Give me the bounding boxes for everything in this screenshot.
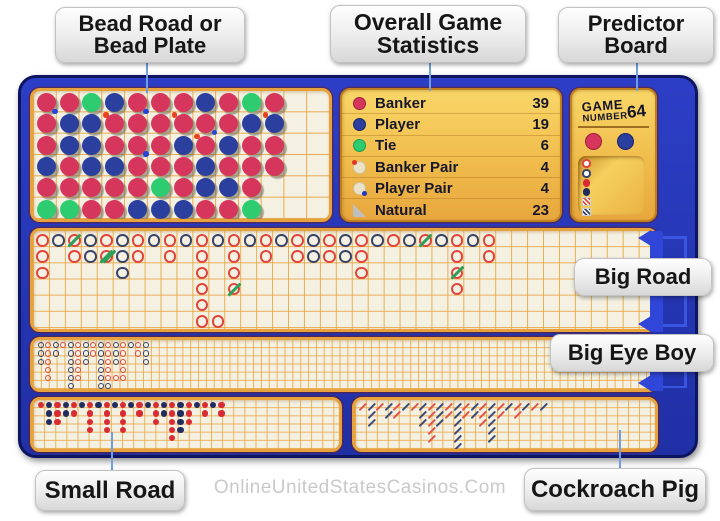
cockroach-pig-label-text: Cockroach Pig <box>531 476 699 504</box>
big-road-player-mark <box>116 267 129 280</box>
player-bead <box>60 136 79 155</box>
player-pair-dot <box>52 109 58 115</box>
label-cockroach-pig: Cockroach Pig <box>524 468 706 511</box>
big-eye-player-mark <box>68 359 74 365</box>
small-road-label-text: Small Road <box>45 477 176 505</box>
small-road-banker-mark <box>54 419 60 425</box>
small-road-player-mark <box>161 410 167 416</box>
big-road-banker-mark <box>260 250 273 263</box>
small-road-banker-mark <box>120 410 126 416</box>
stats-row: Natural23 <box>342 199 560 220</box>
banker-bead <box>151 93 170 112</box>
big-eye-banker-mark <box>120 367 126 373</box>
callout-stats-line1: Overall Game <box>354 11 502 34</box>
big-eye-banker-mark <box>90 350 96 356</box>
tie-bead <box>242 93 261 112</box>
banker-bead <box>242 136 261 155</box>
big-eye-player-mark <box>68 383 74 389</box>
player-pair-dot <box>143 109 149 115</box>
banker-bead <box>60 93 79 112</box>
player-bead <box>60 114 79 133</box>
stats-row: Banker Pair4 <box>342 157 560 178</box>
big-eye-banker-mark <box>75 350 81 356</box>
big-road-player-mark <box>116 234 129 247</box>
banker-bead <box>151 136 170 155</box>
natural-icon <box>353 204 366 217</box>
big-eye-player-mark <box>38 350 44 356</box>
predictor-board-panel: GAME NUMBER 64 <box>570 88 657 222</box>
player-bead <box>151 200 170 219</box>
small-road-banker-mark <box>120 419 126 425</box>
big-road-player-mark <box>339 234 352 247</box>
big-road-player-mark <box>307 250 320 263</box>
stats-label: Natural <box>375 202 427 219</box>
small-road-player-mark <box>177 410 183 416</box>
banker-bead <box>196 136 215 155</box>
big-eye-player-mark <box>143 359 149 365</box>
stats-value: 4 <box>541 180 549 197</box>
big-road-player-mark <box>244 234 257 247</box>
stats-row: Tie6 <box>342 136 560 157</box>
player-predictor-circle <box>617 133 634 150</box>
stats-value: 19 <box>532 116 549 133</box>
big-road-player-mark <box>371 234 384 247</box>
banker-icon <box>353 97 366 110</box>
big-road-bracket-arrow-bottom <box>638 316 651 332</box>
banker-bead <box>37 136 56 155</box>
big-road-banker-mark <box>36 267 49 280</box>
big-eye-player-mark <box>143 350 149 356</box>
stats-row: Banker39 <box>342 93 560 114</box>
small-road-banker-mark <box>104 427 110 433</box>
big-road-player-mark <box>339 250 352 263</box>
small-road-banker-mark <box>71 410 77 416</box>
big-eye-banker-mark <box>105 367 111 373</box>
big-eye-player-mark <box>98 367 104 373</box>
banker-bead <box>174 178 193 197</box>
small-road-player-mark <box>177 427 183 433</box>
big-eye-boy-label-text: Big Eye Boy <box>568 340 696 366</box>
big-eye-banker-mark <box>105 359 111 365</box>
banker-bead <box>128 157 147 176</box>
big-eye-player-mark <box>68 350 74 356</box>
small-road-banker-mark <box>169 410 175 416</box>
label-big-eye-boy: Big Eye Boy <box>550 334 714 372</box>
small-road-banker-mark <box>202 410 208 416</box>
banker-bead <box>174 114 193 133</box>
big-eye-banker-mark <box>120 350 126 356</box>
big-road-player-mark <box>52 234 65 247</box>
player-pair-dot <box>143 151 149 157</box>
big-eye-banker-mark <box>113 375 119 381</box>
big-road-player-mark <box>275 234 288 247</box>
big-eye-bracket-stub-bottom <box>663 386 686 389</box>
banker-bead <box>265 136 284 155</box>
big-eye-player-mark <box>98 375 104 381</box>
small-road-banker-mark <box>104 410 110 416</box>
banker-pair-dot <box>172 112 178 118</box>
big-road-banker-mark <box>196 234 209 247</box>
big-eye-player-mark <box>98 350 104 356</box>
player-bead <box>265 114 284 133</box>
big-eye-player-mark <box>68 367 74 373</box>
big-road-banker-mark <box>36 234 49 247</box>
big-road-player-mark <box>467 234 480 247</box>
banker-cockroach-slash-icon <box>582 197 591 206</box>
callout-stats-line2: Statistics <box>377 34 479 57</box>
big-eye-banker-mark <box>45 359 51 365</box>
number-label: NUMBER <box>582 110 628 124</box>
big-road-banker-mark <box>196 315 209 328</box>
big-road-banker-mark <box>260 234 273 247</box>
big-eye-banker-mark <box>135 350 141 356</box>
callout-bead-line2: Bead Plate <box>94 35 207 57</box>
big-eye-bracket-arrow-bottom <box>638 375 651 391</box>
small-road-player-mark <box>177 419 183 425</box>
predictor-result-box <box>578 156 645 215</box>
stats-label: Player Pair <box>375 180 453 197</box>
small-road-player-mark <box>46 410 52 416</box>
big-road-player-mark <box>84 234 97 247</box>
watermark: OnlineUnitedStatesCasinos.Com <box>214 477 506 499</box>
big-road-banker-mark <box>483 234 496 247</box>
big-road-banker-mark <box>291 234 304 247</box>
small-road-banker-mark <box>136 402 142 408</box>
game-statistics-panel: Banker39Player19Tie6Banker Pair4Player P… <box>340 88 562 222</box>
callout-predictor-line1: Predictor <box>588 13 685 35</box>
big-road-banker-mark <box>228 234 241 247</box>
callout-predictor-board: Predictor Board <box>558 7 714 63</box>
banker-bead <box>219 200 238 219</box>
small-road-banker-mark <box>186 410 192 416</box>
big-road-banker-mark <box>36 250 49 263</box>
label-small-road: Small Road <box>35 470 185 511</box>
small-road-grid <box>33 400 339 449</box>
big-eye-player-mark <box>113 359 119 365</box>
big-road-player-mark <box>212 234 225 247</box>
big-road-player-mark <box>435 234 448 247</box>
stats-row: Player Pair4 <box>342 178 560 199</box>
player-cockroach-slash-icon <box>582 208 591 217</box>
cockroach-pig-panel <box>352 397 658 452</box>
big-eye-banker-mark <box>105 350 111 356</box>
banker-bead <box>105 200 124 219</box>
big-road-banker-mark <box>355 267 368 280</box>
small-road-banker-mark <box>104 419 110 425</box>
predictor-icon-column <box>582 159 591 216</box>
small-road-player-mark <box>177 402 183 408</box>
small-road-banker-mark <box>120 427 126 433</box>
callout-predictor-line2: Board <box>604 35 668 57</box>
baccarat-scoreboard-infographic: Bead Road or Bead Plate Overall Game Sta… <box>0 0 720 521</box>
big-road-banker-mark <box>196 250 209 263</box>
big-eye-banker-mark <box>75 359 81 365</box>
tie-bead <box>60 200 79 219</box>
connector-predictor <box>636 63 638 91</box>
small-road-banker-mark <box>54 402 60 408</box>
banker-bead <box>60 157 79 176</box>
big-road-banker-mark <box>355 250 368 263</box>
banker-predictor-circle <box>585 133 602 150</box>
big-eye-player-mark <box>113 350 119 356</box>
big-eye-banker-mark <box>45 367 51 373</box>
player-icon <box>353 118 366 131</box>
big-road-player-mark <box>403 234 416 247</box>
player-pair-icon <box>353 182 366 195</box>
banker-bead <box>174 93 193 112</box>
small-road-banker-mark <box>153 419 159 425</box>
player-bead <box>37 157 56 176</box>
stats-row: Player19 <box>342 114 560 135</box>
game-number-value: 64 <box>626 101 647 123</box>
stats-value: 23 <box>532 202 549 219</box>
small-road-banker-mark <box>54 410 60 416</box>
small-road-panel <box>30 397 342 452</box>
small-road-player-mark <box>63 410 69 416</box>
player-bead <box>128 200 147 219</box>
big-road-banker-mark <box>323 234 336 247</box>
callout-overall-stats: Overall Game Statistics <box>330 5 526 63</box>
big-eye-player-mark <box>83 359 89 365</box>
banker-bead <box>242 157 261 176</box>
big-road-player-mark <box>84 250 97 263</box>
small-road-banker-mark <box>87 410 93 416</box>
banker-smallroad-dot-icon <box>583 179 590 186</box>
label-big-road: Big Road <box>574 258 712 296</box>
big-road-bracket-stub-bottom <box>663 324 686 327</box>
stats-label: Banker <box>375 95 426 112</box>
player-bigroad-ring-icon <box>582 169 591 178</box>
small-road-banker-mark <box>136 410 142 416</box>
big-eye-player-mark <box>38 359 44 365</box>
tie-bead <box>37 200 56 219</box>
stats-label: Player <box>375 116 420 133</box>
big-road-bracket-stub-top <box>663 236 686 239</box>
player-bead <box>174 136 193 155</box>
callout-bead-line1: Bead Road or <box>78 13 221 35</box>
banker-pair-dot <box>103 112 109 118</box>
big-road-player-mark <box>180 234 193 247</box>
big-road-banker-mark <box>228 250 241 263</box>
big-eye-banker-mark <box>75 367 81 373</box>
stats-value: 39 <box>532 95 549 112</box>
tie-icon <box>353 139 366 152</box>
banker-bead <box>265 93 284 112</box>
big-eye-player-mark <box>98 383 104 389</box>
player-bead <box>219 136 238 155</box>
stats-label: Banker Pair <box>375 159 458 176</box>
big-road-player-mark <box>307 234 320 247</box>
connector-stats <box>429 63 431 91</box>
banker-bigroad-ring-icon <box>582 159 591 168</box>
stats-value: 6 <box>541 137 549 154</box>
small-road-banker-mark <box>153 410 159 416</box>
big-road-banker-mark <box>387 234 400 247</box>
big-eye-banker-mark <box>120 359 126 365</box>
big-eye-player-mark <box>83 350 89 356</box>
banker-bead <box>60 178 79 197</box>
big-road-banker-mark <box>355 234 368 247</box>
big-eye-banker-mark <box>45 350 51 356</box>
stats-label: Tie <box>375 137 396 154</box>
big-road-banker-mark <box>100 234 113 247</box>
stats-value: 4 <box>541 159 549 176</box>
small-road-player-mark <box>95 402 101 408</box>
banker-bead <box>151 157 170 176</box>
big-road-panel <box>30 228 658 332</box>
bead-plate-panel <box>30 88 332 222</box>
tie-bead <box>242 200 261 219</box>
callout-bead-road: Bead Road or Bead Plate <box>55 7 245 63</box>
big-road-bracket-arrow-top <box>638 230 651 246</box>
game-number-label: GAME NUMBER <box>581 96 628 124</box>
big-eye-player-mark <box>68 375 74 381</box>
big-road-player-mark <box>148 234 161 247</box>
big-road-banker-mark <box>323 250 336 263</box>
big-road-player-mark <box>116 250 129 263</box>
big-eye-player-mark <box>53 350 59 356</box>
player-smallroad-dot-icon <box>583 188 590 195</box>
big-road-banker-mark <box>291 250 304 263</box>
big-road-label-text: Big Road <box>595 264 692 290</box>
small-road-banker-mark <box>218 410 224 416</box>
banker-bead <box>265 157 284 176</box>
small-road-banker-mark <box>186 419 192 425</box>
banker-pair-dot <box>263 112 269 118</box>
connector-small-road <box>111 432 113 472</box>
big-road-banker-mark <box>164 234 177 247</box>
predictor-divider <box>578 126 649 128</box>
banker-bead <box>174 157 193 176</box>
banker-pair-dot <box>194 134 200 140</box>
banker-bead <box>105 136 124 155</box>
big-eye-player-mark <box>98 359 104 365</box>
banker-bead <box>196 200 215 219</box>
connector-cockroach <box>619 430 621 470</box>
big-road-banker-mark <box>212 315 225 328</box>
connector-bead <box>146 63 148 93</box>
banker-pair-icon <box>353 161 366 174</box>
small-road-banker-mark <box>218 402 224 408</box>
player-bead <box>174 200 193 219</box>
big-road-banker-mark <box>68 250 81 263</box>
